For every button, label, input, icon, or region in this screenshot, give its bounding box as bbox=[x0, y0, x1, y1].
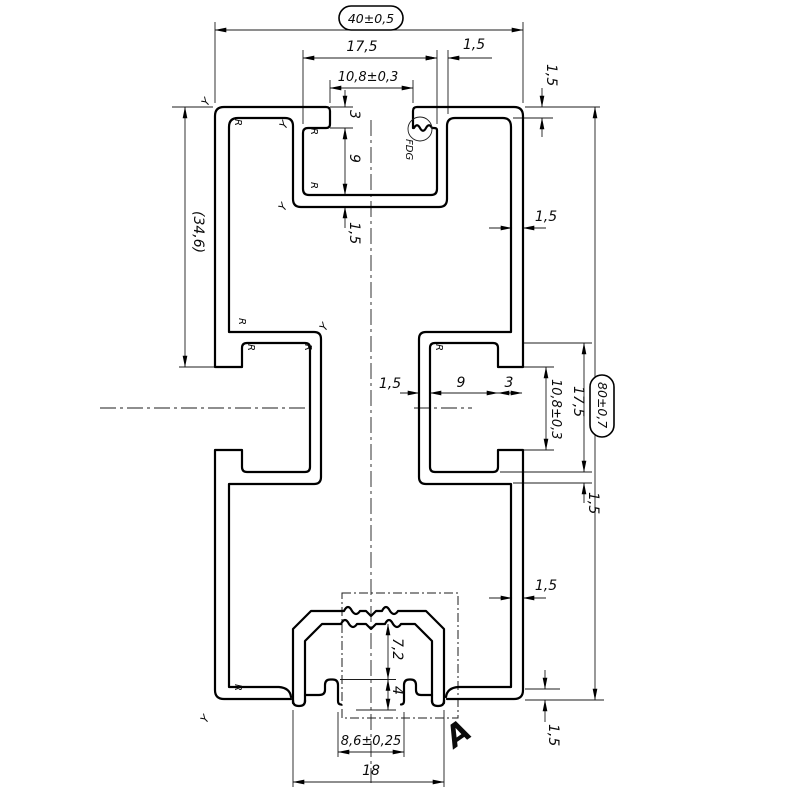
dim-groove-depth: 7,2 bbox=[389, 638, 405, 660]
dim-bottom-opening: 8,6±0,25 bbox=[341, 734, 402, 749]
bottom-foot-right bbox=[432, 700, 444, 706]
dim-wall-slot-floor: 1,5 bbox=[346, 222, 362, 244]
dim-slot-depth-top: 9 bbox=[346, 154, 362, 163]
drawing-sheet: FDG 40±0,5 17,5 1,5 10,8±0,3 3 9 1,5 1,5… bbox=[0, 0, 800, 800]
radius-label: R bbox=[232, 684, 243, 691]
dim-wall-bottom: 1,5 bbox=[545, 724, 561, 746]
profile-outline bbox=[215, 107, 523, 706]
edge-label: Y bbox=[198, 711, 213, 725]
radius-label: R bbox=[245, 344, 256, 351]
radius-label: R bbox=[232, 119, 243, 126]
profile-outer bbox=[215, 107, 523, 699]
bottom-foot-left bbox=[293, 700, 305, 706]
dim-slot-opening-top: 10,8±0,3 bbox=[338, 70, 399, 85]
dimension-texts: 40±0,5 17,5 1,5 10,8±0,3 3 9 1,5 1,5 1,5… bbox=[190, 11, 610, 779]
radius-label: R bbox=[308, 128, 319, 135]
radius-label: R bbox=[302, 344, 313, 351]
dim-overall-height: 80±0,7 bbox=[595, 382, 610, 428]
serration-note: FDG bbox=[403, 117, 432, 160]
edge-label: Y bbox=[276, 199, 291, 213]
profile-inner bbox=[229, 118, 511, 697]
dim-hook-height: 4 bbox=[389, 686, 405, 695]
dim-slot-inner-top: 17,5 bbox=[346, 39, 377, 55]
edge-label: Y bbox=[199, 94, 214, 108]
dim-slot-depth-right: 9 bbox=[457, 375, 466, 391]
radius-label: R bbox=[236, 318, 247, 325]
dim-wall-right-upper: 1,5 bbox=[535, 209, 557, 225]
dim-ref-height: (34,6) bbox=[190, 211, 206, 253]
detail-a-label: A bbox=[437, 713, 478, 756]
dim-wall-right-box: 1,5 bbox=[585, 492, 601, 514]
radius-label: R bbox=[308, 182, 319, 189]
dim-slot-opening-right: 10,8±0,3 bbox=[548, 379, 563, 440]
technical-drawing: FDG 40±0,5 17,5 1,5 10,8±0,3 3 9 1,5 1,5… bbox=[0, 0, 800, 800]
dim-wall-top: 1,5 bbox=[463, 37, 485, 53]
radius-label: R bbox=[433, 344, 444, 351]
edge-label: Y bbox=[317, 319, 332, 333]
dim-wall-top-right: 1,5 bbox=[543, 64, 559, 86]
bottom-box-outer bbox=[293, 607, 444, 703]
dimension-lines bbox=[185, 30, 595, 782]
dim-overall-width: 40±0,5 bbox=[348, 11, 394, 26]
dim-wall-right-slot: 1,5 bbox=[379, 376, 401, 392]
dim-slot-inner-right: 17,5 bbox=[570, 386, 586, 417]
dim-lip-depth-right: 3 bbox=[505, 375, 514, 391]
dim-lip-depth-top: 3 bbox=[346, 110, 362, 119]
note-label: FDG bbox=[403, 139, 414, 160]
dim-bottom-width: 18 bbox=[362, 763, 380, 779]
bottom-hook-left bbox=[305, 680, 341, 705]
dim-wall-right-lower: 1,5 bbox=[535, 578, 557, 594]
